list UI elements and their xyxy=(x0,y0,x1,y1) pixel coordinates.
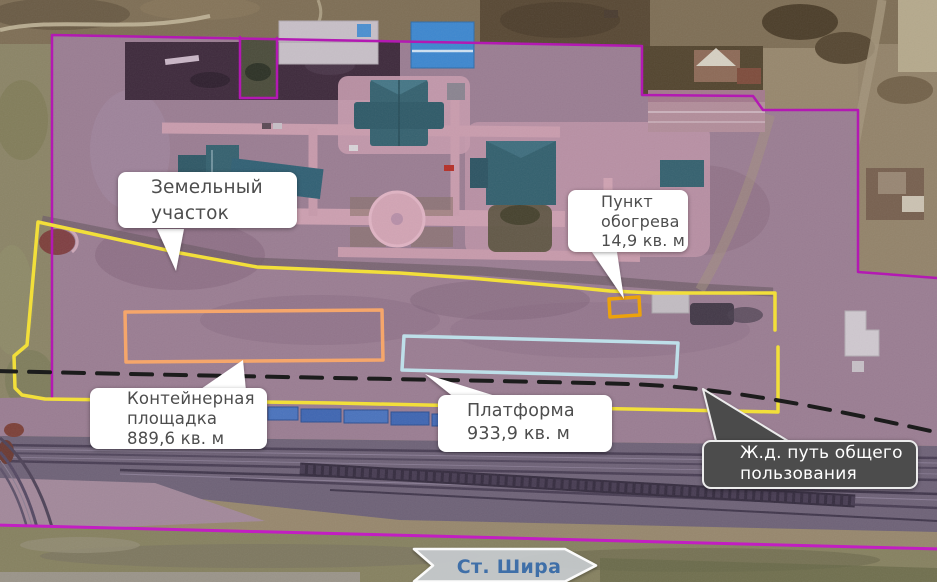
label-line: Платформа xyxy=(467,400,612,423)
label-railway: Ж.д. путь общего пользования xyxy=(702,440,918,489)
label-line: Пункт xyxy=(601,192,688,212)
satellite-base xyxy=(0,0,937,582)
label-line: участок xyxy=(151,201,297,227)
label-land-plot: Земельный участок xyxy=(118,172,297,228)
label-platform: Платформа 933,9 кв. м xyxy=(438,395,612,452)
label-line: обогрева xyxy=(601,212,688,232)
label-line: площадка xyxy=(127,409,267,429)
aerial-map xyxy=(0,0,937,582)
label-line: пользования xyxy=(740,464,916,485)
station-arrow-label: Ст. Шира xyxy=(444,556,574,578)
label-heating-point: Пункт обогрева 14,9 кв. м xyxy=(568,190,688,252)
label-line: 14,9 кв. м xyxy=(601,231,688,251)
label-line: Земельный xyxy=(151,175,297,201)
annotated-site-map: Земельный участок Пункт обогрева 14,9 кв… xyxy=(0,0,937,582)
label-line: 933,9 кв. м xyxy=(467,423,612,446)
label-container-area: Контейнерная площадка 889,6 кв. м xyxy=(90,388,267,449)
label-line: Ж.д. путь общего xyxy=(740,443,916,464)
grain-texture xyxy=(0,0,937,582)
label-line: Контейнерная xyxy=(127,389,267,409)
label-line: 889,6 кв. м xyxy=(127,429,267,449)
